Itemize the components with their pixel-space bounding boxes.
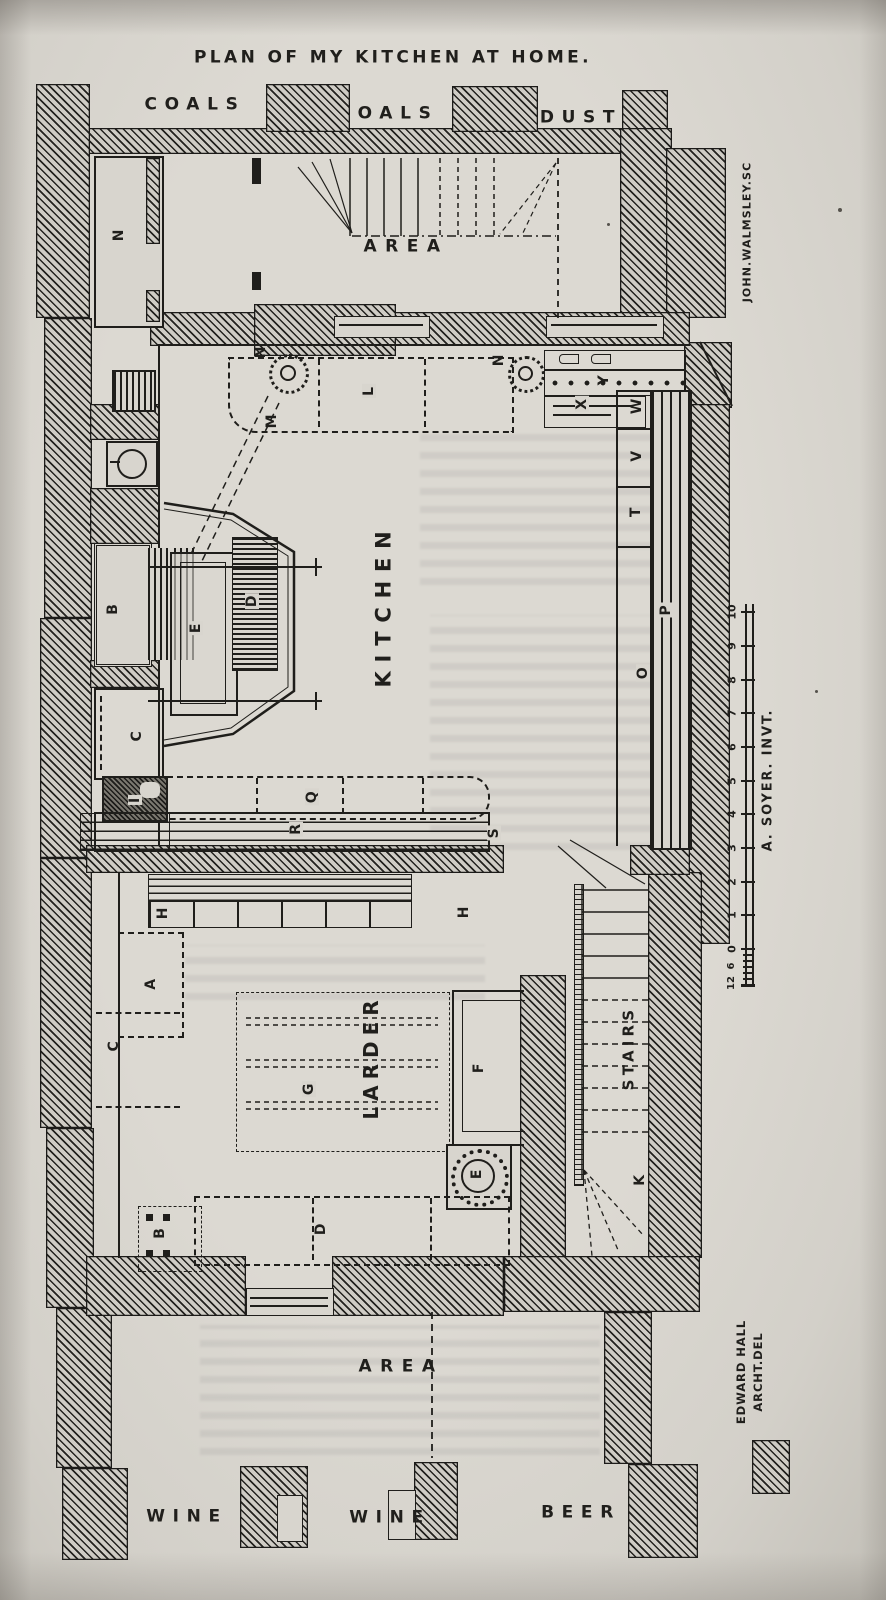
scanned-plate: PLAN OF MY KITCHEN AT HOME. COALS COALS …: [0, 0, 886, 1600]
plan-linework: [0, 0, 886, 1600]
